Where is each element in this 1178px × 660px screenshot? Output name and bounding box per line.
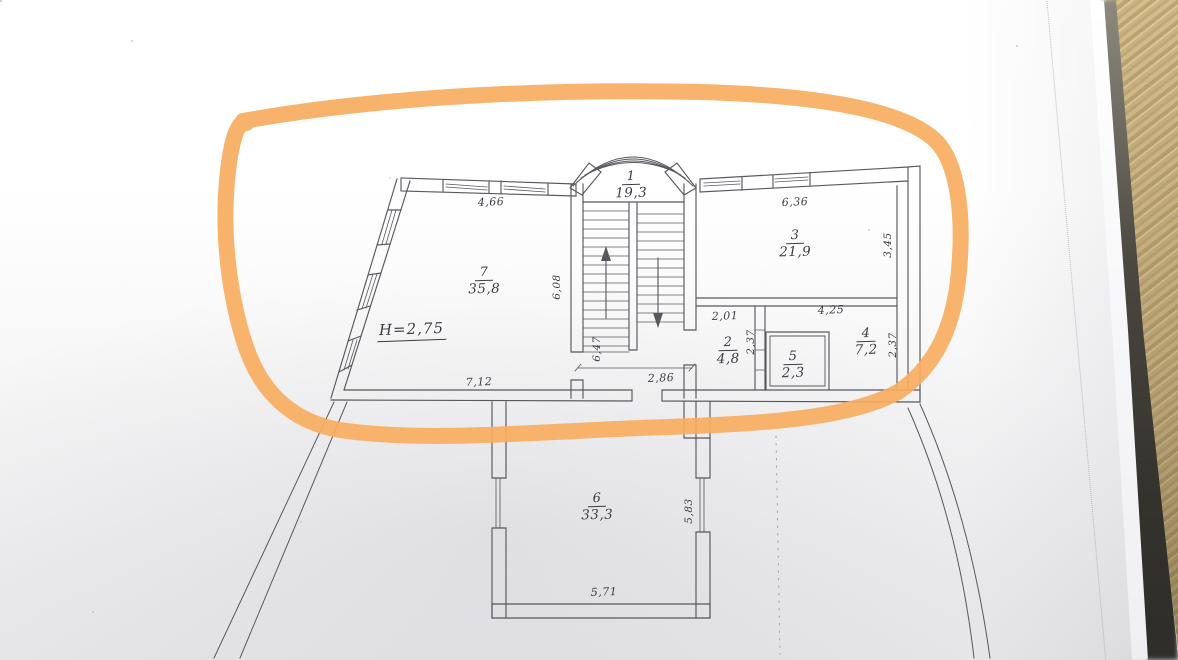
orange-highlight-circle (0, 0, 1178, 660)
photographed-floor-plan: 1 19,3 7 35,8 3 21,9 2 4,8 5 2,3 4 7,2 6… (0, 0, 1178, 660)
